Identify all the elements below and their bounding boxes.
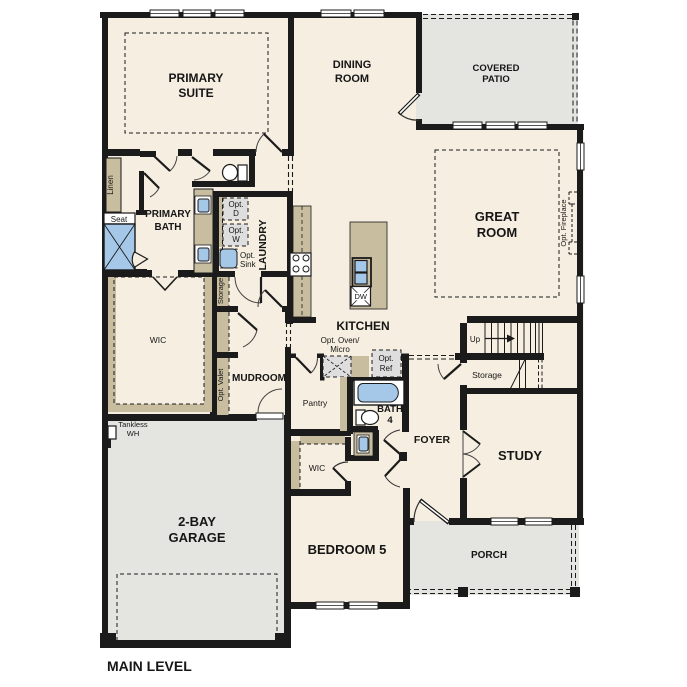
svg-text:D: D [233,209,239,218]
svg-text:STUDY: STUDY [498,448,542,463]
svg-text:PRIMARY: PRIMARY [169,71,224,85]
svg-text:BEDROOM 5: BEDROOM 5 [308,542,387,557]
svg-text:LAUNDRY: LAUNDRY [257,220,269,271]
svg-text:Opt. Fireplace: Opt. Fireplace [559,199,568,246]
svg-text:Opt. Valet: Opt. Valet [216,368,225,402]
svg-text:MAIN LEVEL: MAIN LEVEL [107,658,192,674]
svg-text:Tankless: Tankless [118,420,147,429]
svg-text:ROOM: ROOM [477,225,517,240]
svg-text:PRIMARY: PRIMARY [145,209,191,220]
svg-text:Sink: Sink [240,260,257,269]
svg-text:Opt. Oven/: Opt. Oven/ [321,336,360,345]
svg-text:Linen: Linen [106,175,115,195]
svg-text:BATH: BATH [377,404,403,415]
svg-text:ROOM: ROOM [335,73,369,85]
svg-text:COVERED: COVERED [473,63,520,74]
svg-text:4: 4 [387,415,393,426]
svg-text:W: W [232,235,240,244]
svg-text:WIC: WIC [150,335,167,345]
svg-text:Opt.: Opt. [228,200,243,209]
svg-text:Opt.: Opt. [240,251,255,260]
svg-text:2-BAY: 2-BAY [178,514,216,529]
svg-text:Storage: Storage [472,370,502,380]
svg-text:Opt.: Opt. [228,226,243,235]
svg-text:FOYER: FOYER [414,434,451,446]
svg-text:Micro: Micro [330,345,350,354]
svg-text:BATH: BATH [154,222,181,233]
svg-text:Pantry: Pantry [303,398,328,408]
svg-text:WH: WH [127,429,140,438]
svg-text:MUDROOM: MUDROOM [232,373,286,384]
svg-text:GARAGE: GARAGE [168,530,225,545]
svg-text:WIC: WIC [309,463,326,473]
svg-text:Seat: Seat [111,215,128,224]
svg-text:DINING: DINING [333,59,372,71]
svg-text:DW: DW [355,292,368,301]
svg-text:Opt.: Opt. [378,354,393,363]
svg-text:PATIO: PATIO [482,74,510,85]
svg-text:Up: Up [470,335,481,344]
svg-text:PORCH: PORCH [471,550,507,561]
svg-text:GREAT: GREAT [475,209,520,224]
svg-text:SUITE: SUITE [178,86,213,100]
svg-text:KITCHEN: KITCHEN [336,319,389,333]
svg-text:Storage: Storage [216,278,225,304]
svg-text:Ref: Ref [380,364,393,373]
